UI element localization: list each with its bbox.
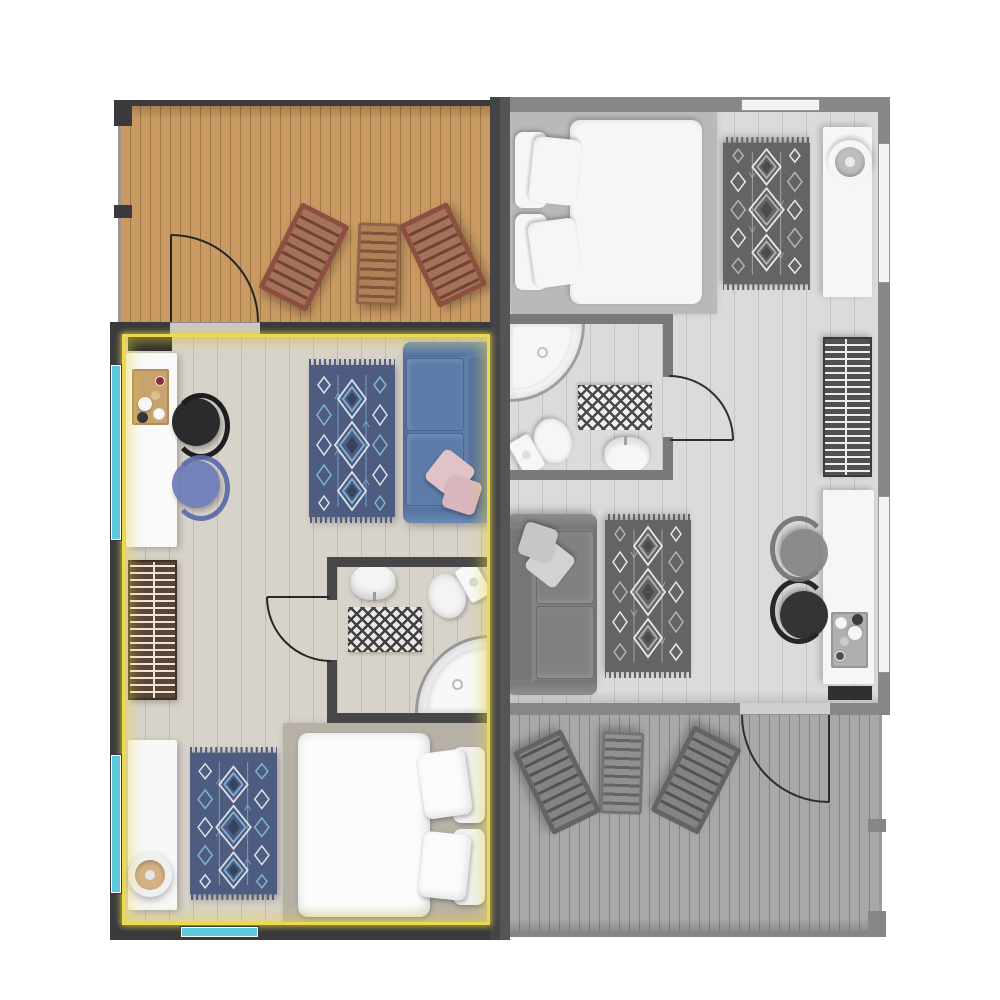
faucet	[373, 592, 376, 601]
plate	[848, 626, 862, 640]
bed-pillow	[528, 136, 583, 207]
bathroom-wall	[663, 437, 673, 470]
sofa	[403, 342, 493, 523]
bathroom-wall	[327, 660, 337, 713]
window	[111, 365, 121, 540]
kitchen-counter	[126, 353, 177, 547]
terrace-door-threshold	[740, 703, 830, 715]
plate	[138, 397, 152, 411]
berry-bowl	[835, 651, 845, 661]
kitchen-counter	[823, 490, 874, 684]
double-bed	[283, 723, 489, 925]
sofa	[507, 514, 597, 695]
wall	[500, 97, 890, 112]
wall	[830, 703, 890, 715]
wall	[110, 322, 170, 334]
bed-pillow	[418, 831, 473, 902]
shower-drain	[537, 348, 548, 359]
serving-tray	[132, 369, 169, 425]
wall	[260, 322, 490, 334]
radiator	[128, 560, 177, 700]
sofa-cushion	[406, 358, 464, 431]
bathroom-wall	[327, 567, 337, 600]
bathroom-wall	[510, 314, 673, 324]
bathroom-wall	[510, 470, 673, 480]
bedroom-rug	[723, 137, 810, 290]
window	[111, 755, 121, 893]
cup	[153, 408, 165, 420]
wall	[118, 100, 490, 106]
cup	[137, 412, 148, 423]
sofa-armrest	[403, 508, 493, 523]
double-bed	[511, 112, 717, 314]
radiator	[823, 337, 872, 477]
unit-left[interactable]	[110, 97, 500, 940]
wall-post	[868, 911, 886, 937]
corner-shower	[415, 635, 490, 713]
kitchen-cabinet	[128, 337, 172, 351]
bathroom	[510, 314, 673, 480]
unit-right[interactable]	[500, 97, 890, 940]
bathroom	[327, 557, 490, 723]
floor-plan-canvas	[0, 0, 1000, 1000]
corner-shower	[510, 324, 585, 402]
wall-post	[114, 100, 132, 126]
serving-tray	[831, 612, 868, 668]
shower-tray	[513, 327, 573, 390]
wall	[110, 925, 500, 940]
decor-bowl	[128, 853, 172, 897]
bedroom-rug	[190, 747, 277, 900]
faucet	[624, 436, 627, 445]
snack	[840, 637, 849, 646]
duvet	[570, 120, 702, 304]
bar-chair-black	[172, 398, 220, 446]
window	[879, 497, 889, 672]
sofa-cushion	[536, 606, 594, 679]
berry-bowl	[155, 376, 165, 386]
bath-mat	[348, 607, 422, 652]
washbasin	[604, 437, 650, 473]
bed-pillow	[417, 748, 474, 820]
bathroom-wall	[663, 324, 673, 377]
lounge-table	[356, 222, 401, 305]
living-room-rug	[605, 514, 691, 678]
terrace-door-threshold	[170, 322, 260, 334]
snack	[151, 391, 160, 400]
window	[879, 144, 889, 282]
lounge-table	[600, 731, 645, 814]
party-wall	[500, 97, 510, 940]
sofa-armrest	[507, 680, 597, 695]
bar-chair-blue	[780, 529, 828, 577]
bed-pillow	[527, 217, 584, 289]
window	[181, 927, 258, 937]
bar-chair-black	[780, 591, 828, 639]
bathroom-wall	[327, 557, 490, 567]
bar-chair-blue	[172, 460, 220, 508]
kitchen-cabinet	[828, 686, 872, 700]
wall	[510, 931, 882, 937]
cup	[852, 614, 863, 625]
washbasin	[350, 564, 396, 600]
shower-drain	[452, 679, 463, 690]
cup	[835, 617, 847, 629]
bath-mat	[578, 385, 652, 430]
bathroom-wall	[327, 713, 490, 723]
duvet	[298, 733, 430, 917]
living-room-rug	[309, 359, 395, 523]
wall-post	[114, 205, 132, 218]
wall	[510, 703, 740, 715]
shower-tray	[427, 647, 487, 710]
decor-bowl	[828, 140, 872, 184]
wall-post	[868, 819, 886, 832]
party-wall	[490, 97, 500, 940]
window	[742, 100, 819, 110]
